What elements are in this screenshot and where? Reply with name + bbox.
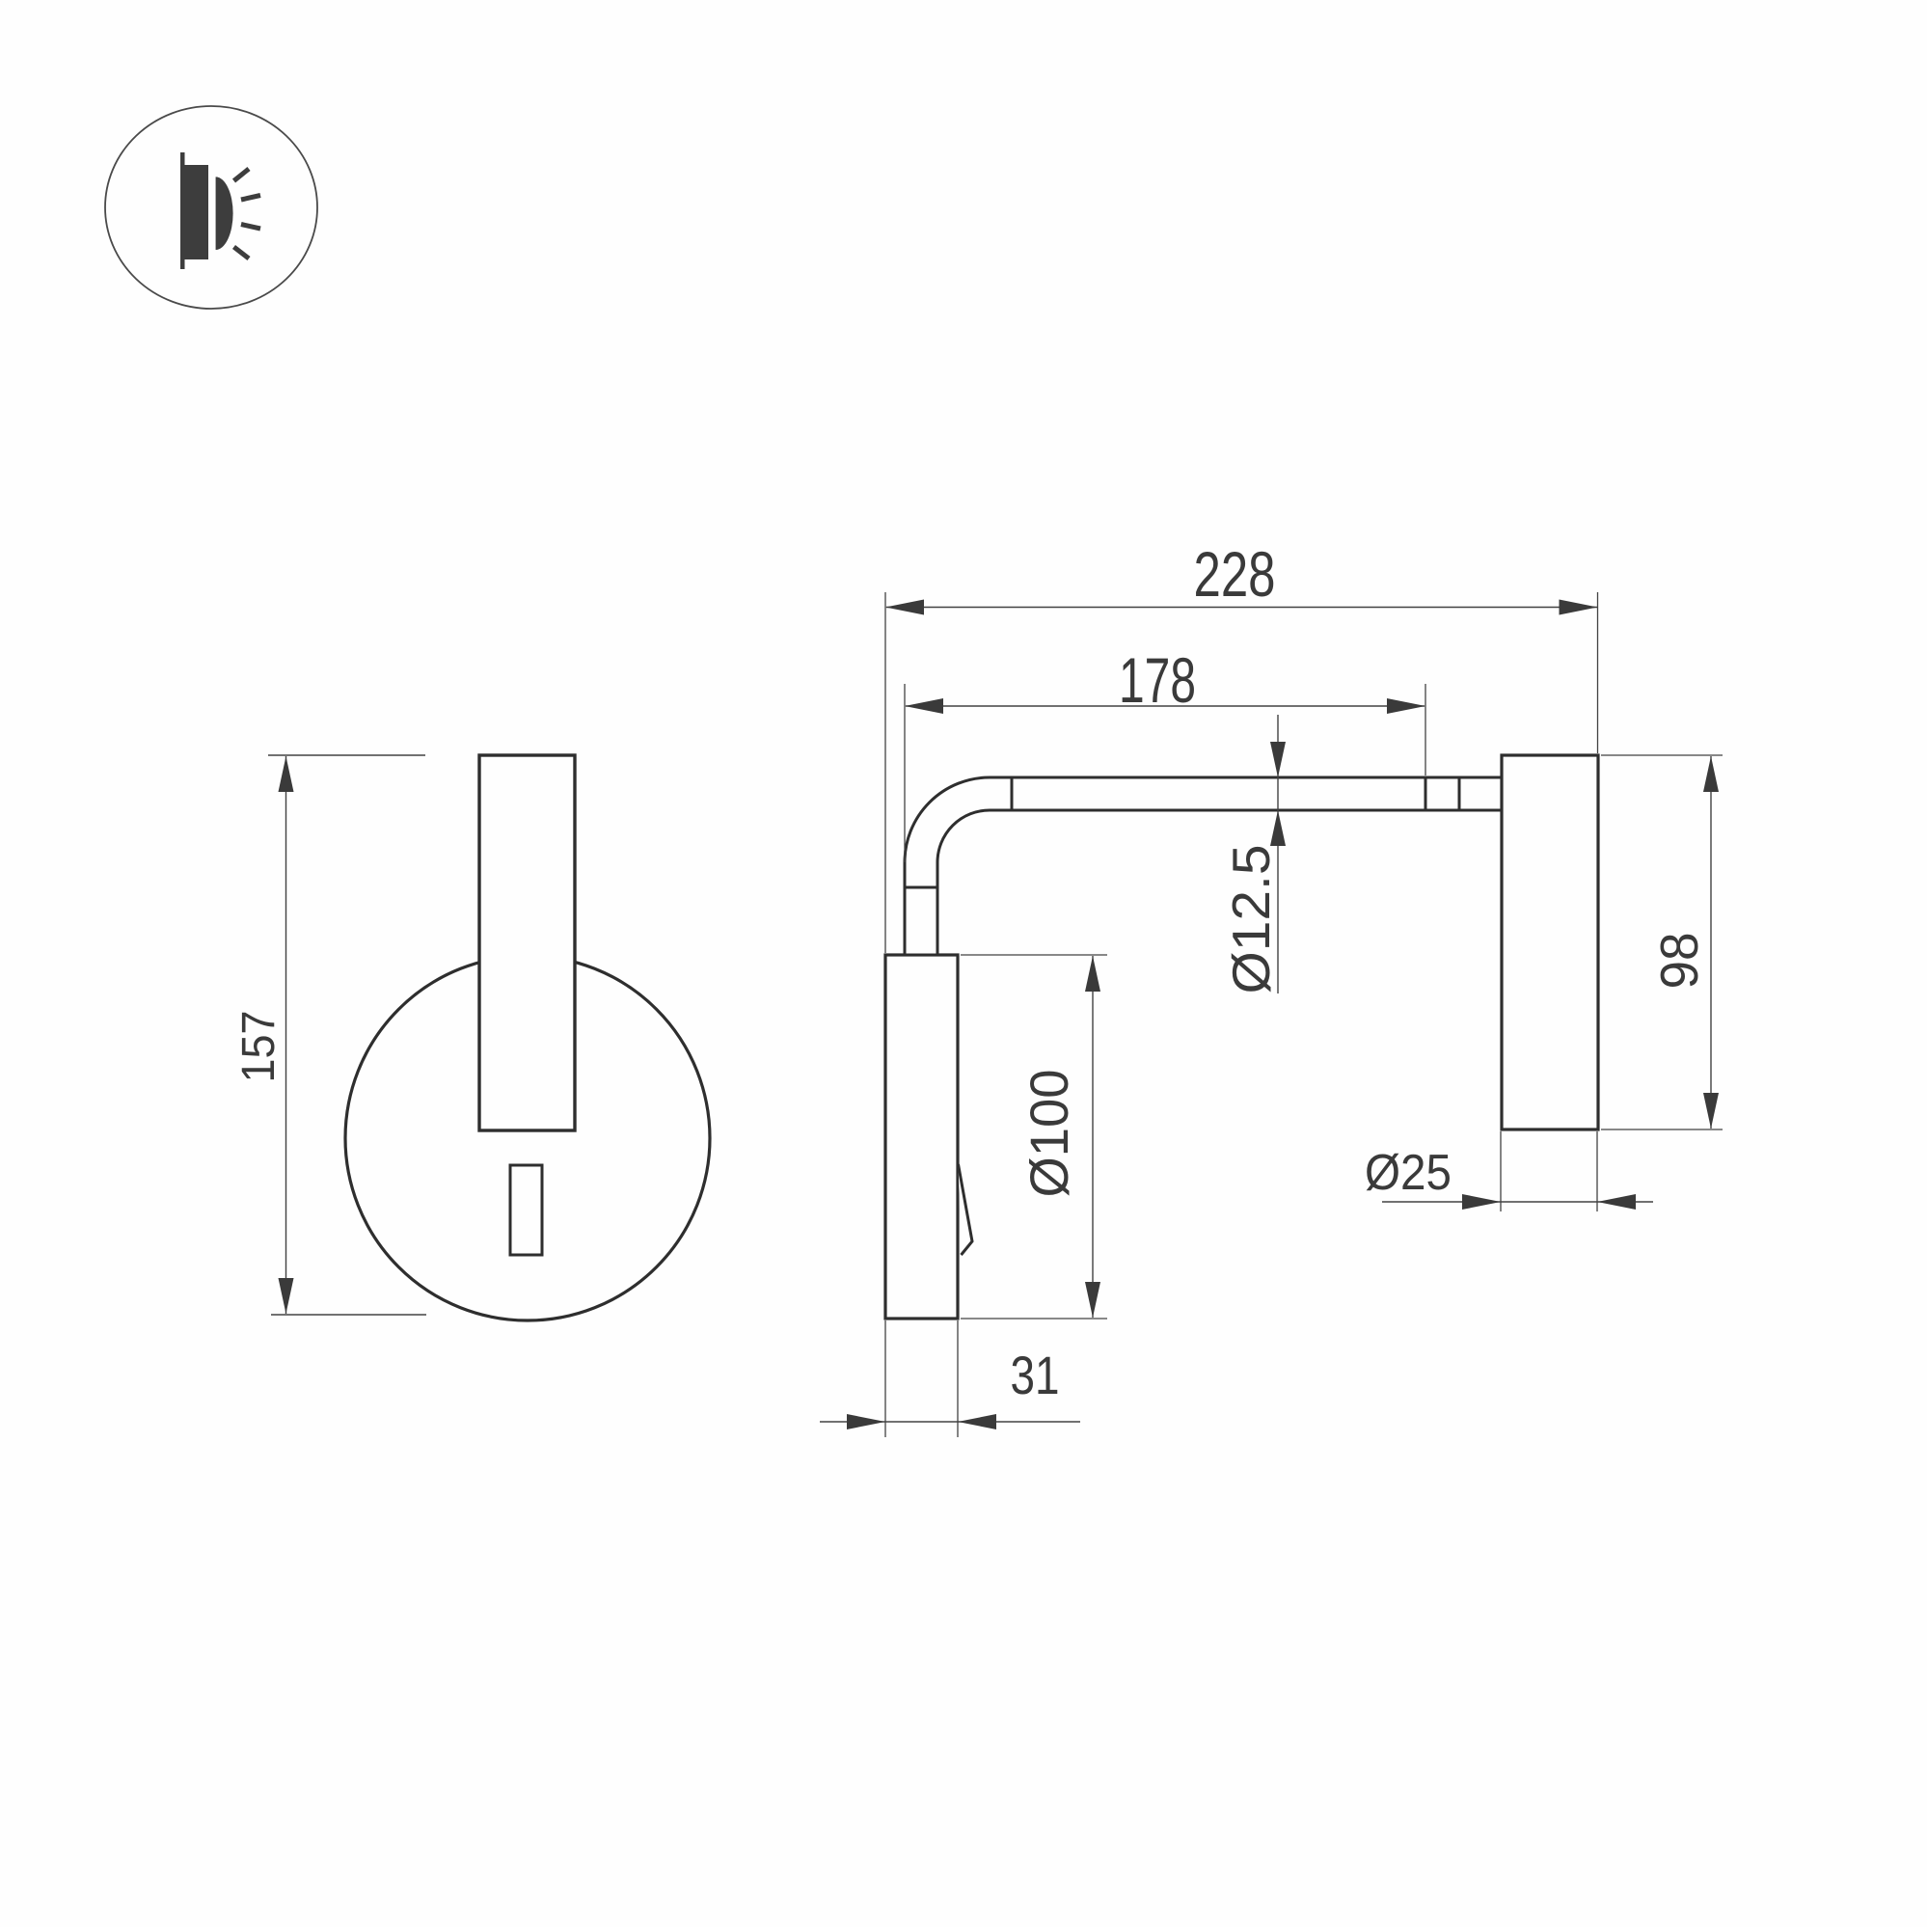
svg-text:Ø100: Ø100 — [1018, 1070, 1079, 1198]
svg-text:178: 178 — [1119, 644, 1196, 716]
svg-text:Ø12.5: Ø12.5 — [1221, 845, 1281, 994]
svg-text:31: 31 — [1011, 1345, 1060, 1405]
svg-text:Ø25: Ø25 — [1365, 1145, 1452, 1201]
svg-text:98: 98 — [1649, 933, 1709, 990]
svg-text:228: 228 — [1194, 538, 1276, 610]
svg-text:157: 157 — [233, 1011, 285, 1083]
